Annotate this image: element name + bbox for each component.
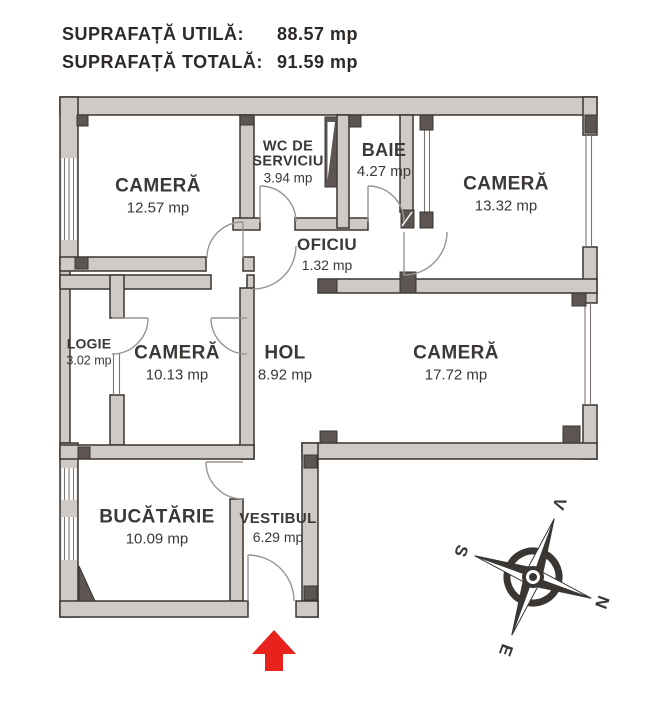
room-label-vestibul: VESTIBUL 6.29 mp [239,510,316,546]
room-area: 10.13 mp [134,366,220,383]
compass-north-label: N [591,593,613,611]
compass-south-label: S [450,542,472,559]
room-area: 6.29 mp [239,530,316,546]
room-name: BUCĂTĂRIE [99,506,215,528]
room-label-bucatarie: BUCĂTĂRIE 10.09 mp [99,506,215,547]
room-area: 3.94 mp [242,171,334,187]
room-name: HOL [258,342,312,364]
compass-west-label: V [548,495,570,513]
room-area: 10.09 mp [99,530,215,547]
room-name: CAMERĂ [463,173,549,195]
floorplan-page: SUPRAFAȚĂ UTILĂ:88.57 mp SUPRAFAȚĂ TOTAL… [0,0,652,720]
room-area: 17.72 mp [413,366,499,383]
room-name: WC DE SERVICIU [242,139,334,169]
room-label-camera-4: CAMERĂ 17.72 mp [413,342,499,383]
room-label-oficiu: OFICIU 1.32 mp [297,235,357,273]
room-area: 12.57 mp [115,199,201,216]
pipe-chase-icon [79,566,95,601]
room-name: OFICIU [297,235,357,255]
room-label-camera-3: CAMERĂ 10.13 mp [134,342,220,383]
room-area: 3.02 mp [66,354,111,369]
room-area: 1.32 mp [297,257,357,273]
room-name: CAMERĂ [413,342,499,364]
room-name: VESTIBUL [239,510,316,527]
room-area: 13.32 mp [463,197,549,214]
room-name: CAMERĂ [134,342,220,364]
entrance-arrow-icon [252,630,296,671]
room-name: BAIE [357,140,411,161]
room-name: CAMERĂ [115,175,201,197]
compass-east-label: E [495,642,517,659]
room-label-camera-1: CAMERĂ 12.57 mp [115,175,201,216]
room-label-baie: BAIE 4.27 mp [357,140,411,180]
room-area: 4.27 mp [357,163,411,180]
room-label-hol: HOL 8.92 mp [258,342,312,383]
compass-icon: N S E V [424,469,640,684]
room-label-wc-serviciu: WC DE SERVICIU 3.94 mp [242,139,334,186]
room-label-logie: LOGIE 3.02 mp [66,336,111,369]
room-name: LOGIE [66,336,111,352]
room-label-camera-2: CAMERĂ 13.32 mp [463,173,549,214]
room-area: 8.92 mp [258,366,312,383]
